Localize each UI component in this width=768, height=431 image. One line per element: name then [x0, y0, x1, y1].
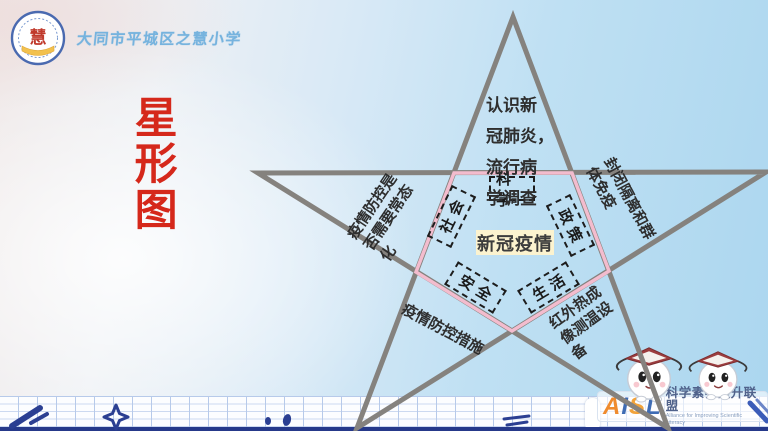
node-life-label: 生活 [528, 267, 573, 306]
node-safety-label: 安全 [455, 269, 500, 308]
center-topic: 新冠疫情 [476, 230, 554, 255]
school-logo-icon: 慧 [10, 10, 66, 66]
annotation-left: 疫情防控是 否需要常态 化 [343, 156, 444, 266]
annotation-top: 认识新 冠肺炎， 流行病 学调查 [486, 90, 554, 214]
presentation-slide: 慧 大同市平城区之慧小学 星形图 A I S L 科学素养提升联盟 Allian… [0, 0, 768, 431]
svg-text:慧: 慧 [30, 27, 47, 48]
school-name: 大同市平城区之慧小学 [76, 28, 243, 49]
node-society-label: 社会 [434, 192, 470, 237]
bottom-navy-bar [0, 427, 768, 431]
mascot-icon [688, 347, 748, 401]
node-safety: 安全 [444, 261, 507, 314]
alliance-name-en: Alliance for Improving Scientific Litera… [666, 413, 762, 427]
annotation-bottom-left: 疫情防控措施 [398, 298, 487, 359]
node-policy-label: 政策 [553, 205, 589, 250]
mascot-icon [615, 343, 683, 403]
page-title: 星形图 [129, 95, 174, 245]
